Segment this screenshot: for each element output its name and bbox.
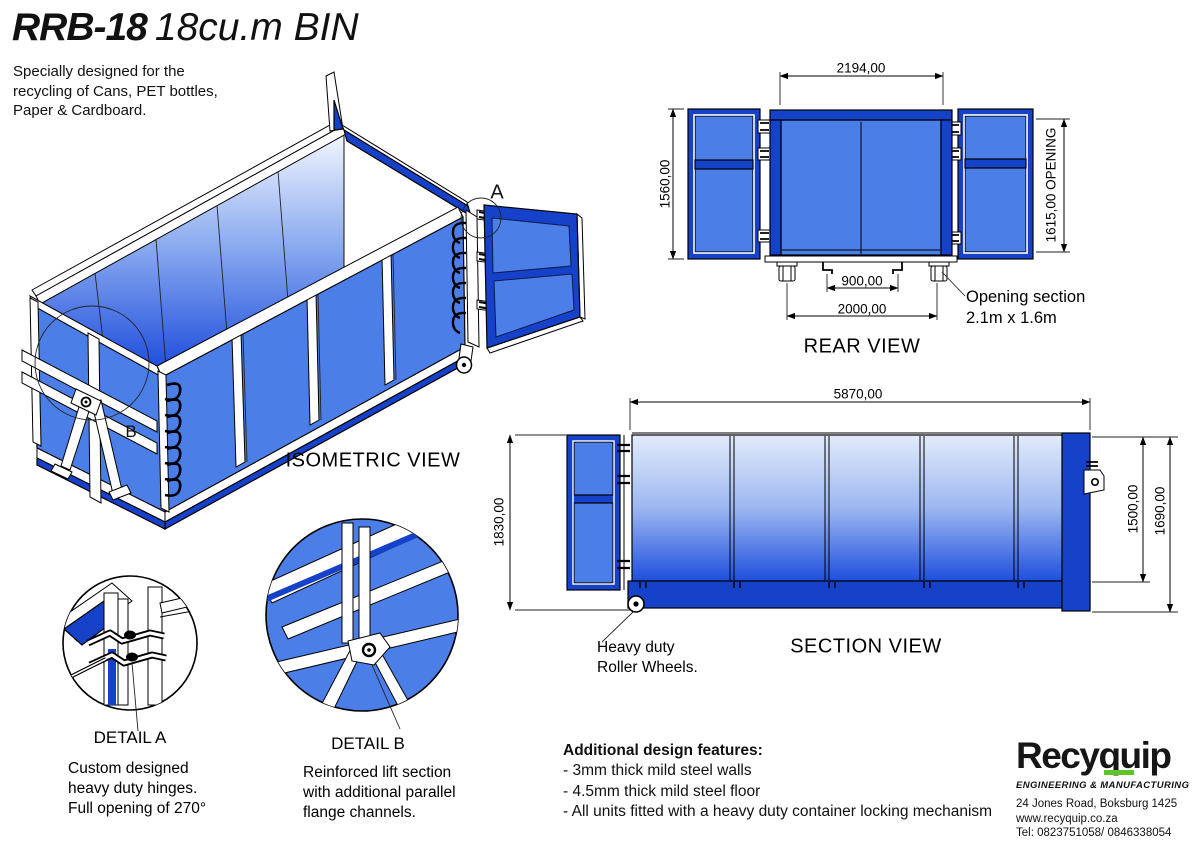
rear-view-label: REAR VIEW (804, 336, 921, 359)
brand-tagline: ENGINEERING & MANUFACTURING (1016, 780, 1198, 791)
section-dim-right-outer: 1690,00 (1153, 487, 1168, 536)
brand-website: www.recyquip.co.za (1016, 812, 1198, 827)
page-title: RRB-1818cu.m BIN (12, 8, 359, 48)
roller-wheels-callout: Heavy duty Roller Wheels. (597, 638, 698, 678)
detail-b-drawing (262, 515, 472, 733)
drawing-sheet: RRB-1818cu.m BIN Specially designed for … (0, 0, 1200, 843)
model-code: RRB-18 (12, 6, 147, 49)
rear-left-door (688, 109, 771, 259)
feature-item: - 4.5mm thick mild steel floor (563, 782, 992, 803)
rear-view-drawing (640, 50, 1100, 380)
rear-dim-outer: 2000,00 (838, 302, 887, 317)
rear-body (765, 110, 957, 262)
isometric-view-label: ISOMETRIC VIEW (286, 450, 461, 473)
features-title: Additional design features: (563, 740, 992, 761)
section-latch (1084, 462, 1104, 494)
rear-dim-right: 1615,00 OPENING (1044, 128, 1059, 243)
detail-a-drawing (52, 563, 212, 735)
detail-a-label: DETAIL A (94, 728, 167, 748)
detail-b-description: Reinforced lift section with additional … (303, 763, 456, 823)
section-view-label: SECTION VIEW (790, 636, 942, 659)
section-left-door (567, 435, 630, 590)
detail-b-label: DETAIL B (331, 734, 405, 754)
rear-dim-left: 1560,00 (658, 160, 673, 209)
section-roller-wheel (602, 596, 644, 642)
marker-b-label: B (125, 422, 136, 442)
rear-dim-top: 2194,00 (837, 61, 886, 76)
marker-a-label: A (490, 182, 503, 205)
brand-logo: Recyquip (1016, 738, 1198, 774)
rear-top-rail (342, 125, 471, 216)
feature-item: - 3mm thick mild steel walls (563, 761, 992, 782)
brand-block: Recyquip ENGINEERING & MANUFACTURING 24 … (1016, 738, 1198, 841)
rear-right-door (948, 109, 1033, 259)
rear-dim-inner: 900,00 (841, 274, 882, 289)
detail-a-description: Custom designed heavy duty hinges. Full … (68, 759, 206, 819)
brand-address: 24 Jones Road, Boksburg 1425 (1016, 797, 1198, 812)
section-dim-right-inner: 1500,00 (1126, 485, 1141, 534)
rear-opening-callout: Opening section 2.1m x 1.6m (966, 287, 1085, 329)
additional-features: Additional design features: - 3mm thick … (563, 740, 992, 823)
brand-green-underline-icon (1104, 770, 1134, 775)
section-dim-top: 5870,00 (834, 387, 883, 402)
section-dim-left: 1830,00 (492, 498, 507, 547)
feature-item: - All units fitted with a heavy duty con… (563, 802, 992, 823)
model-name: 18cu.m BIN (155, 6, 359, 49)
lift-hook-fin (326, 72, 343, 131)
section-body (628, 433, 1090, 611)
brand-phone: Tel: 0823751058/ 0846338054 (1016, 826, 1198, 841)
